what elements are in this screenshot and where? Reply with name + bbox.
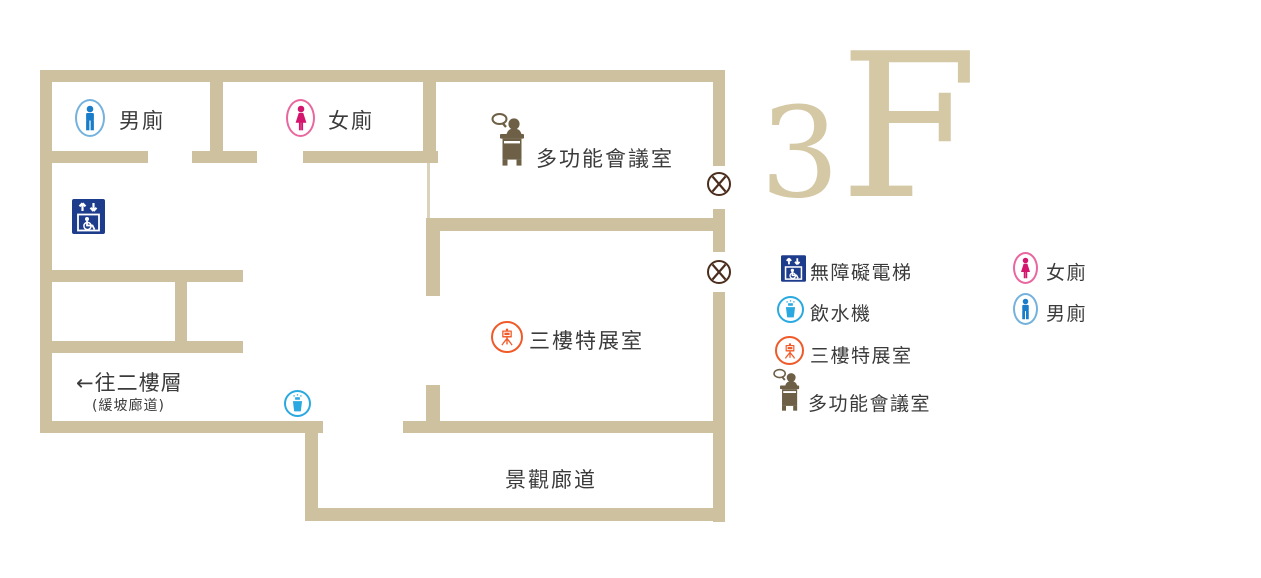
mens-toilet-label: 男廁: [119, 105, 165, 135]
man-figure-icon: [81, 104, 99, 132]
wall-leftroom-h1: [40, 270, 243, 282]
floor-plan: 男廁 女廁: [0, 0, 760, 578]
ramp-corridor-note: (緩坡廊道): [92, 395, 165, 415]
wall-corridor-bottom: [305, 508, 725, 521]
floor-title: 3F: [760, 28, 978, 228]
meeting-room-icon: [490, 112, 530, 166]
mens-toilet-icon: [75, 99, 105, 137]
wall-corridor-left: [305, 433, 318, 508]
wall-top: [40, 70, 725, 82]
wall-toilet-divider: [210, 82, 223, 151]
water-fountain-icon: [777, 296, 804, 323]
x-icon: [711, 264, 727, 280]
water-fountain-icon: [284, 390, 311, 417]
wall-meeting-exhibit-divider: [426, 218, 725, 231]
mens-toilet-icon: [1013, 293, 1038, 325]
podium-speaker-icon: [772, 368, 804, 411]
womens-toilet-icon: [286, 99, 315, 137]
accessible-elevator-icon: [72, 199, 105, 234]
wall-leftroom-h2: [40, 341, 243, 353]
meeting-room-label: 多功能會議室: [536, 143, 674, 173]
elevator-wheelchair-icon: [72, 199, 105, 234]
water-cup-icon: [289, 394, 306, 413]
womens-toilet-icon: [1013, 252, 1038, 284]
no-entry-icon: [707, 172, 731, 196]
exhibition-room-icon: [491, 321, 523, 353]
easel-icon: [779, 340, 801, 362]
exhibition-room-icon: [775, 336, 804, 365]
woman-figure-icon: [292, 104, 310, 132]
womens-toilet-label: 女廁: [328, 105, 374, 135]
legend-label-meeting: 多功能會議室: [808, 389, 931, 416]
wall-womens-right: [423, 82, 436, 163]
wall-exhibit-left-upper: [426, 231, 440, 296]
water-cup-icon: [782, 300, 799, 319]
accessible-elevator-icon: [781, 255, 806, 282]
legend: 無障礙電梯 飲水機 三樓特展室: [760, 240, 1261, 440]
woman-figure-icon: [1018, 256, 1033, 280]
wall-toilet-bottom-1: [52, 151, 148, 163]
exhibition-room-label: 三樓特展室: [529, 325, 644, 355]
wall-leftroom-vertical: [175, 282, 187, 341]
wall-left: [40, 70, 52, 433]
legend-label-elevator: 無障礙電梯: [810, 258, 913, 285]
x-icon: [711, 176, 727, 192]
floor-letter: F: [840, 11, 979, 244]
meeting-room-icon: [772, 368, 804, 411]
legend-label-mens: 男廁: [1046, 299, 1087, 326]
wall-toilet-bottom-2: [192, 151, 257, 163]
legend-label-womens: 女廁: [1046, 258, 1087, 285]
scenic-corridor-label: 景觀廊道: [505, 464, 597, 494]
wall-glass-door-line: [427, 163, 430, 218]
to-second-floor-label: ←往二樓層: [76, 367, 183, 397]
wall-right-upper: [713, 82, 725, 166]
no-entry-icon: [707, 260, 731, 284]
wall-toilet-bottom-3: [303, 151, 438, 163]
man-figure-icon: [1018, 297, 1033, 321]
easel-icon: [495, 325, 519, 349]
legend-label-exhibition: 三樓特展室: [810, 341, 913, 368]
legend-label-water: 飲水機: [810, 299, 872, 326]
wall-exhibit-left-lower: [426, 385, 440, 421]
legend-item-elevator: [781, 255, 806, 282]
wall-bottom-mid: [403, 421, 725, 433]
floor-number: 3: [760, 81, 840, 226]
wall-bottom-left: [40, 421, 323, 433]
wall-right-lower: [713, 292, 725, 522]
podium-speaker-icon: [490, 112, 530, 166]
